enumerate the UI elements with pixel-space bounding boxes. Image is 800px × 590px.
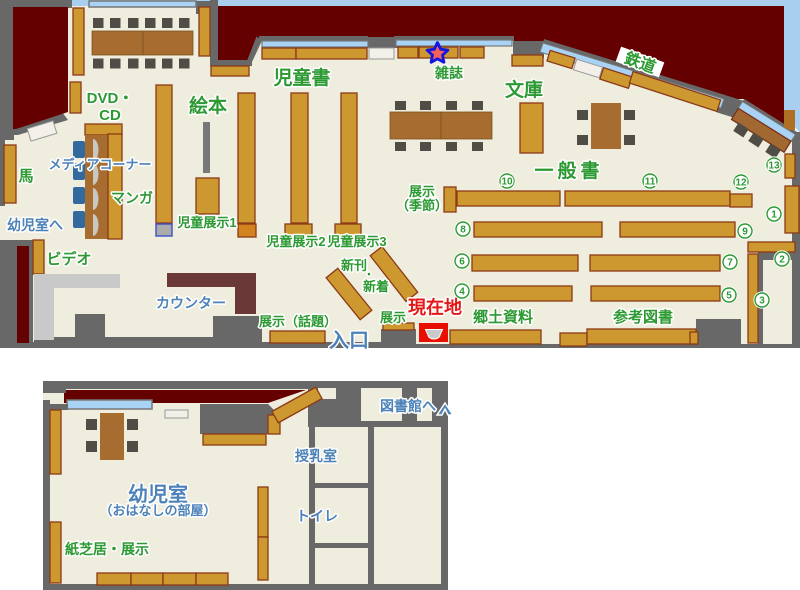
svg-text:8: 8 <box>460 225 466 236</box>
svg-text:馬: 馬 <box>18 168 33 185</box>
svg-text:新着: 新着 <box>363 279 389 294</box>
svg-text:入口: 入口 <box>329 329 369 352</box>
svg-text:参考図書: 参考図書 <box>613 308 673 326</box>
svg-text:児童展示2: 児童展示2 <box>265 234 325 249</box>
svg-text:12: 12 <box>735 178 747 189</box>
svg-text:授乳室: 授乳室 <box>295 448 337 464</box>
svg-text:児童展示1: 児童展示1 <box>176 215 236 230</box>
svg-text:11: 11 <box>645 177 656 188</box>
svg-text:DVD・: DVD・ <box>87 90 134 107</box>
svg-text:ビデオ: ビデオ <box>46 250 91 268</box>
svg-text:児童書: 児童書 <box>272 66 330 89</box>
svg-text:7: 7 <box>727 258 733 269</box>
svg-text:4: 4 <box>459 287 465 298</box>
svg-text:郷土資料: 郷土資料 <box>473 308 533 326</box>
svg-text:メディアコーナー: メディアコーナー <box>48 157 151 172</box>
svg-text:マンガ: マンガ <box>111 190 153 206</box>
svg-text:6: 6 <box>459 257 465 268</box>
svg-text:3: 3 <box>759 296 765 307</box>
svg-text:1: 1 <box>771 210 777 221</box>
svg-text:トイレ: トイレ <box>296 508 338 524</box>
svg-text:文庫: 文庫 <box>505 78 543 101</box>
svg-text:図書館へ: 図書館へ <box>380 398 436 414</box>
svg-text:紙芝居・展示: 紙芝居・展示 <box>65 541 149 557</box>
svg-text:（季節）: （季節） <box>396 198 448 213</box>
svg-text:絵本: 絵本 <box>189 94 227 117</box>
svg-text:CD: CD <box>99 107 121 124</box>
svg-text:現在地: 現在地 <box>408 297 462 318</box>
svg-text:展示（話題）: 展示（話題） <box>259 314 337 329</box>
svg-text:展示: 展示 <box>409 184 435 199</box>
svg-text:（おはなしの部屋）: （おはなしの部屋） <box>99 503 216 518</box>
svg-text:2: 2 <box>779 255 785 266</box>
svg-text:13: 13 <box>768 161 780 172</box>
svg-text:5: 5 <box>726 291 732 302</box>
svg-text:10: 10 <box>501 177 513 188</box>
svg-text:幼児室へ: 幼児室へ <box>7 217 63 233</box>
svg-text:雑誌: 雑誌 <box>434 65 463 81</box>
svg-text:一般書: 一般書 <box>534 159 603 182</box>
svg-text:9: 9 <box>742 227 748 238</box>
svg-text:カウンター: カウンター <box>156 295 226 311</box>
svg-text:展示: 展示 <box>380 310 406 325</box>
svg-text:児童展示3: 児童展示3 <box>326 234 386 249</box>
